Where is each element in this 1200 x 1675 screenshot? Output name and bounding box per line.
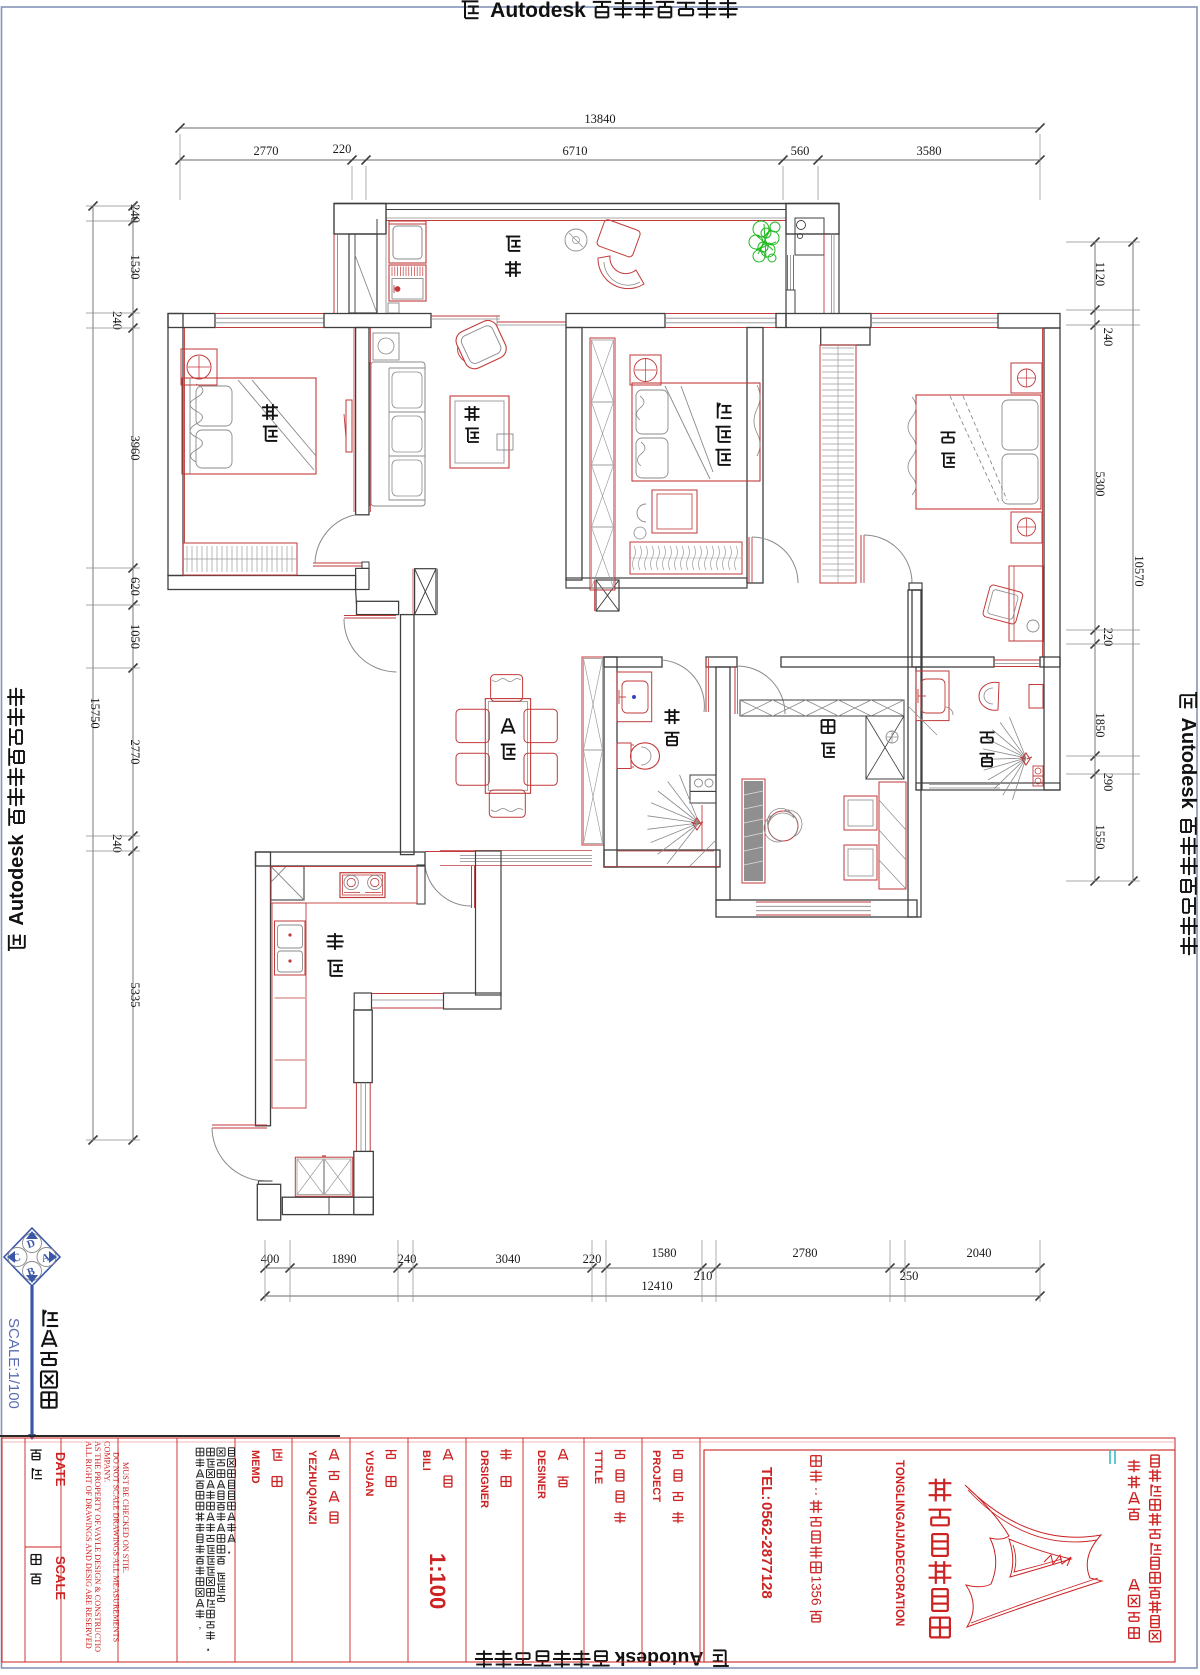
svg-text:2770: 2770: [128, 740, 142, 765]
svg-text:YUSUAN: YUSUAN: [363, 1450, 375, 1497]
svg-text:Autodesk: Autodesk: [1177, 717, 1199, 809]
svg-text:DO NOT SCALE DRAWINGS ALL MEAS: DO NOT SCALE DRAWINGS ALL MEASUREMENTS: [112, 1452, 121, 1643]
svg-text:6710: 6710: [563, 144, 588, 158]
svg-text:10570: 10570: [1132, 555, 1146, 586]
svg-text:TEL:: TEL:: [758, 1467, 775, 1500]
svg-text:ALL RIGHT OF DRAWINGS AND DESI: ALL RIGHT OF DRAWINGS AND DESIG ARE RESE…: [84, 1441, 93, 1649]
svg-text:620: 620: [128, 577, 142, 596]
svg-text:DATE: DATE: [53, 1452, 68, 1487]
svg-text:2770: 2770: [254, 144, 279, 158]
svg-text:15750: 15750: [88, 697, 102, 728]
svg-text:1580: 1580: [652, 1246, 677, 1260]
svg-text:1:100: 1:100: [425, 1553, 450, 1609]
svg-text:12410: 12410: [641, 1279, 672, 1293]
svg-text:240: 240: [110, 834, 124, 853]
svg-text:Autodesk: Autodesk: [6, 834, 28, 926]
svg-text:,: ,: [199, 1620, 202, 1631]
svg-text:5300: 5300: [1093, 472, 1107, 497]
svg-text:TTTLE: TTTLE: [592, 1450, 604, 1484]
svg-text:250: 250: [900, 1269, 919, 1283]
svg-text:1890: 1890: [332, 1252, 357, 1266]
svg-text:DESINER: DESINER: [535, 1450, 547, 1499]
svg-text:MEMD: MEMD: [249, 1450, 261, 1484]
svg-text:2780: 2780: [793, 1246, 818, 1260]
svg-text:240: 240: [128, 204, 142, 223]
svg-text:PROJECT: PROJECT: [650, 1450, 662, 1502]
svg-text:2040: 2040: [967, 1246, 992, 1260]
svg-text:400: 400: [261, 1252, 280, 1266]
svg-text:3040: 3040: [496, 1252, 521, 1266]
svg-text:240: 240: [1101, 328, 1115, 347]
svg-text:1850: 1850: [1093, 713, 1107, 738]
svg-text:COMPANY.: COMPANY.: [102, 1441, 111, 1482]
svg-text:TONGLINGAIJIADECORATION: TONGLINGAIJIADECORATION: [893, 1460, 905, 1626]
svg-text:BILI: BILI: [420, 1450, 432, 1471]
svg-text:0562-2877128: 0562-2877128: [758, 1502, 775, 1599]
svg-text:1050: 1050: [128, 624, 142, 649]
svg-text:MUST BE CHECKED ON STIE.: MUST BE CHECKED ON STIE.: [121, 1462, 130, 1573]
svg-text:DRSIGNER: DRSIGNER: [478, 1450, 490, 1508]
svg-text:220: 220: [333, 142, 352, 156]
svg-text:1550: 1550: [1093, 825, 1107, 850]
svg-text:SCALE: SCALE: [53, 1556, 68, 1600]
svg-text:13840: 13840: [584, 112, 615, 126]
svg-text:210: 210: [694, 1269, 713, 1283]
svg-text:220: 220: [1101, 628, 1115, 647]
svg-text:Autodesk: Autodesk: [614, 1647, 703, 1669]
svg-text:240: 240: [110, 311, 124, 330]
svg-text:1356: 1356: [808, 1576, 823, 1606]
svg-text:YEZHUQIANZI: YEZHUQIANZI: [306, 1450, 318, 1525]
svg-text:3960: 3960: [128, 436, 142, 461]
svg-text:3580: 3580: [917, 144, 942, 158]
svg-text:SCALE:1/100: SCALE:1/100: [5, 1318, 22, 1409]
svg-text:240: 240: [398, 1252, 417, 1266]
svg-text:AS THE PROPERTY OF.VAYLE DESIG: AS THE PROPERTY OF.VAYLE DESIGN & CONSTR…: [93, 1441, 102, 1652]
svg-text:1530: 1530: [128, 255, 142, 280]
svg-text:Autodesk: Autodesk: [490, 0, 586, 22]
svg-text:5335: 5335: [128, 983, 142, 1008]
svg-text:1120: 1120: [1093, 262, 1107, 287]
svg-text:560: 560: [791, 144, 810, 158]
svg-text:290: 290: [1101, 773, 1115, 792]
